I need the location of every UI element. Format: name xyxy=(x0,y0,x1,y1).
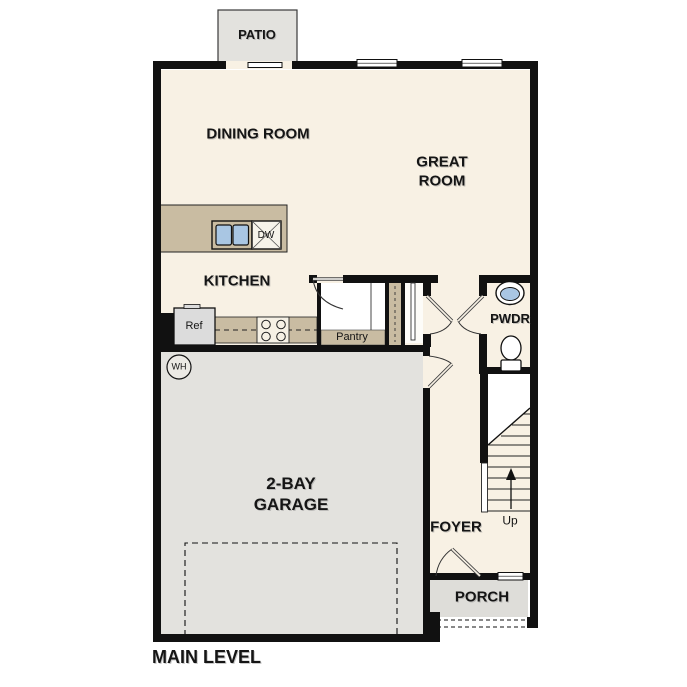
pantry-interior xyxy=(321,283,385,330)
wall-stair-left xyxy=(480,374,488,463)
room-label-dining: DINING ROOM xyxy=(206,126,309,145)
water-heater-label: WH xyxy=(172,361,187,372)
wall-foyer-bottom-b xyxy=(523,573,535,580)
wall-hall-stub-lower xyxy=(423,334,431,347)
stairs-up-label: Up xyxy=(502,514,517,529)
wall-closet-left xyxy=(385,283,389,345)
room-label-foyer: FOYER xyxy=(430,519,482,538)
dishwasher-label: DW xyxy=(258,230,275,243)
room-label-porch: PORCH xyxy=(455,589,509,608)
window-top-1 xyxy=(357,60,397,68)
range-cooktop xyxy=(257,317,289,343)
room-label-great: GREAT ROOM xyxy=(400,153,484,191)
wall-right xyxy=(530,61,538,622)
room-label-kitchen: KITCHEN xyxy=(204,273,271,292)
wall-pwdr-left-upper xyxy=(479,283,487,296)
window-foyer xyxy=(498,573,523,581)
wall-garage-right-a xyxy=(423,347,430,356)
wall-garage-right-b xyxy=(423,388,430,642)
powder-sink xyxy=(496,282,524,305)
door-closet-closed xyxy=(411,283,415,340)
wall-closet-right xyxy=(401,283,405,345)
toilet xyxy=(501,336,521,371)
wall-hall-stub-upper xyxy=(423,283,431,296)
room-label-powder: PWDR xyxy=(490,311,530,327)
room-label-pantry: Pantry xyxy=(336,331,368,345)
wall-greatroom-south xyxy=(343,275,438,283)
level-title: MAIN LEVEL xyxy=(152,646,261,669)
wall-foyer-bottom-a xyxy=(423,573,498,580)
refrigerator-label: Ref xyxy=(185,320,202,334)
patio-slider-panel xyxy=(248,63,282,68)
room-label-garage: 2-BAY GARAGE xyxy=(239,473,343,516)
wall-kitchen-left-chunk xyxy=(153,313,174,347)
wall-garage-bottom xyxy=(153,634,430,642)
wall-garage-top xyxy=(153,345,430,352)
window-top-2 xyxy=(462,60,502,68)
porch-post xyxy=(527,617,538,628)
room-label-patio: PATIO xyxy=(238,27,276,43)
refrigerator-handle xyxy=(184,305,200,309)
stair-rail xyxy=(482,463,488,512)
floor-plan: PATIO DINING ROOM GREAT ROOM KITCHEN Pan… xyxy=(0,0,687,687)
